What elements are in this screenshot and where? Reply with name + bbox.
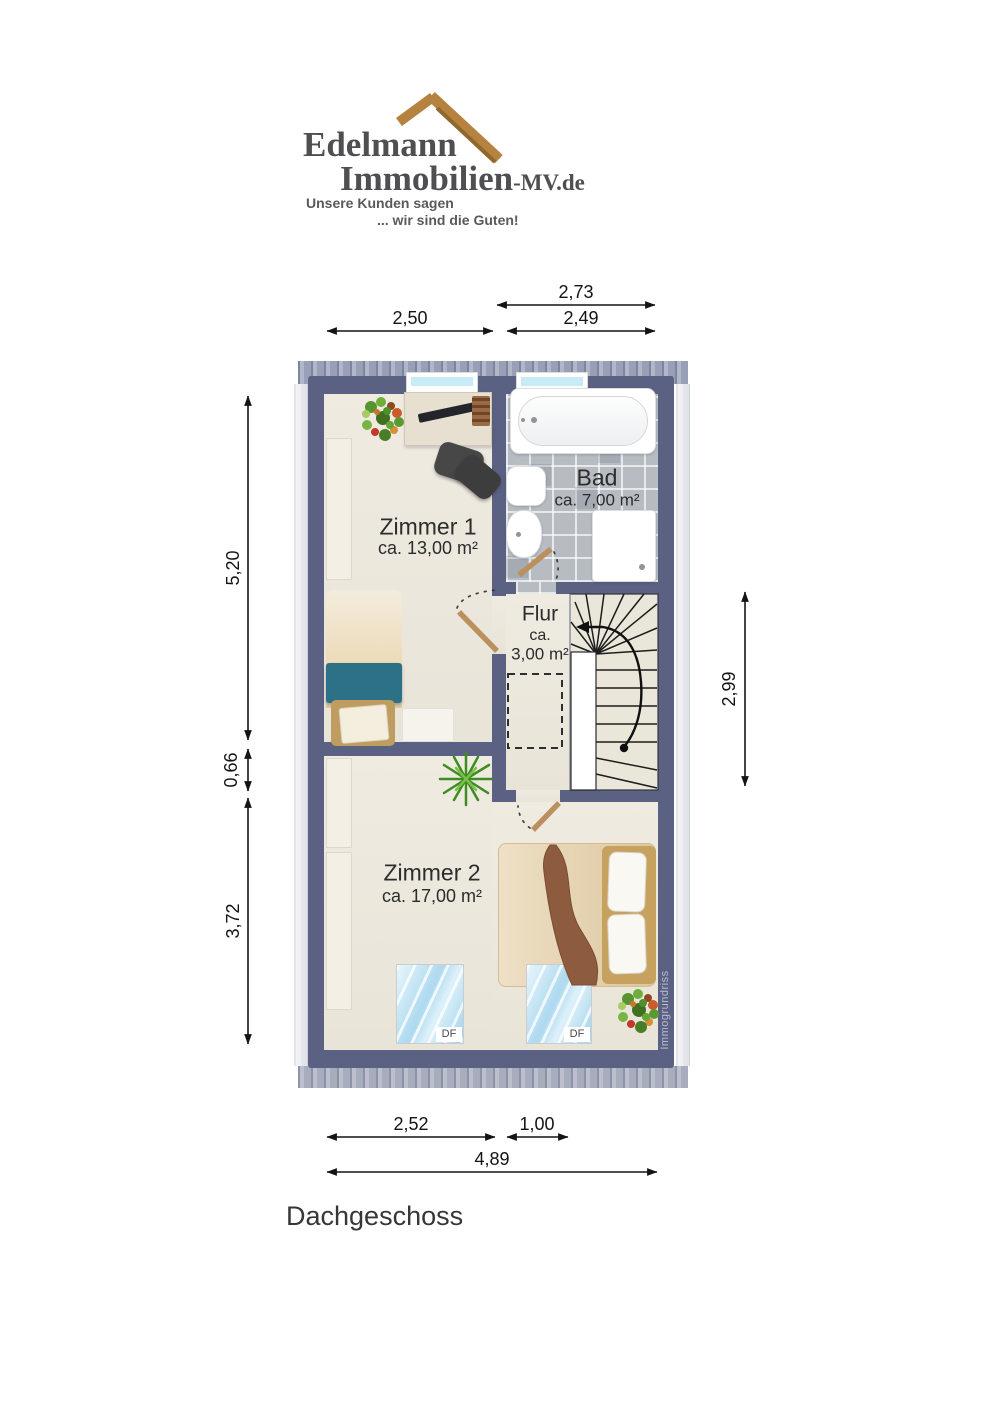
room-label-zimmer2: Zimmer 2 bbox=[383, 862, 480, 885]
roof-hatch-left bbox=[294, 384, 308, 1066]
bidet-drain bbox=[516, 532, 521, 537]
dim-left-zimmer1-height: 5,20 bbox=[224, 550, 242, 585]
shower-tray bbox=[592, 510, 656, 582]
zimmer2-door-opening bbox=[516, 790, 560, 802]
brand-name-line2: Immobilien-MV.de bbox=[340, 161, 585, 196]
zimmer1-door-opening bbox=[492, 596, 506, 654]
bathtub-faucet bbox=[521, 418, 525, 422]
printer bbox=[472, 396, 490, 426]
skylight-label: DF bbox=[564, 1027, 590, 1042]
nightstand bbox=[402, 708, 454, 742]
skylight-left: DF bbox=[396, 964, 464, 1044]
room-label-zimmer1: Zimmer 1 bbox=[379, 516, 476, 539]
brand-name-line1: Edelmann bbox=[303, 127, 457, 162]
room-label-flur: Flur bbox=[522, 604, 558, 625]
watermark-immogrundriss: Immogrundriss bbox=[659, 970, 671, 1049]
roof-hatch-bottom bbox=[298, 1066, 688, 1088]
toilet bbox=[506, 466, 546, 506]
room-area-zimmer2: ca. 17,00 m² bbox=[382, 887, 482, 905]
dim-right-stair-height: 2,99 bbox=[720, 671, 738, 706]
brand-name-main: Immobilien bbox=[340, 159, 513, 198]
room-area-flur-value: 3,00 m² bbox=[511, 646, 569, 663]
skylight-right: DF bbox=[526, 964, 592, 1044]
dim-top-zimmer1-width: 2,50 bbox=[392, 309, 427, 327]
dim-top-bad-inner-width: 2,49 bbox=[563, 309, 598, 327]
brand-tagline-line1: Unsere Kunden sagen bbox=[306, 196, 454, 210]
bad-tile-accent bbox=[506, 556, 528, 578]
dim-left-zimmer2-height: 3,72 bbox=[224, 903, 242, 938]
room-area-bad: ca. 7,00 m² bbox=[554, 492, 639, 509]
bad-door-opening bbox=[516, 582, 556, 594]
pillow bbox=[607, 851, 647, 912]
bathtub-drain bbox=[531, 417, 537, 423]
room-label-bad: Bad bbox=[577, 467, 618, 490]
window-glass bbox=[521, 377, 583, 386]
pillow bbox=[607, 913, 647, 974]
room-area-flur-prefix: ca. bbox=[529, 628, 550, 644]
bidet bbox=[506, 510, 542, 558]
roof-hatch-right bbox=[676, 384, 690, 1066]
staircase-floor bbox=[570, 594, 658, 790]
zimmer2-wardrobe-upper bbox=[326, 758, 352, 848]
dim-left-offset: 0,66 bbox=[222, 752, 240, 787]
single-bed-blanket bbox=[326, 663, 402, 703]
brand-name-suffix: -MV.de bbox=[513, 170, 585, 195]
zimmer2-wardrobe-lower bbox=[326, 852, 352, 1010]
dim-bottom-stair-width: 1,00 bbox=[519, 1115, 554, 1133]
footboard-cushion bbox=[339, 704, 390, 744]
brand-tagline-line2: ... wir sind die Guten! bbox=[377, 213, 519, 227]
floor-title: Dachgeschoss bbox=[286, 1201, 463, 1232]
shower-drain bbox=[639, 564, 645, 570]
floorplan-page: Edelmann Immobilien-MV.de Unsere Kunden … bbox=[0, 0, 1000, 1416]
window-glass bbox=[411, 377, 473, 386]
dim-top-bad-width: 2,73 bbox=[558, 283, 593, 301]
skylight-label: DF bbox=[436, 1027, 462, 1042]
dim-bottom-total-width: 4,89 bbox=[474, 1150, 509, 1168]
zimmer1-wardrobe bbox=[326, 438, 352, 580]
bathtub bbox=[510, 388, 656, 454]
bathtub-basin bbox=[518, 396, 648, 446]
dim-bottom-zimmer2-width: 2,52 bbox=[393, 1115, 428, 1133]
room-area-zimmer1: ca. 13,00 m² bbox=[378, 539, 478, 557]
